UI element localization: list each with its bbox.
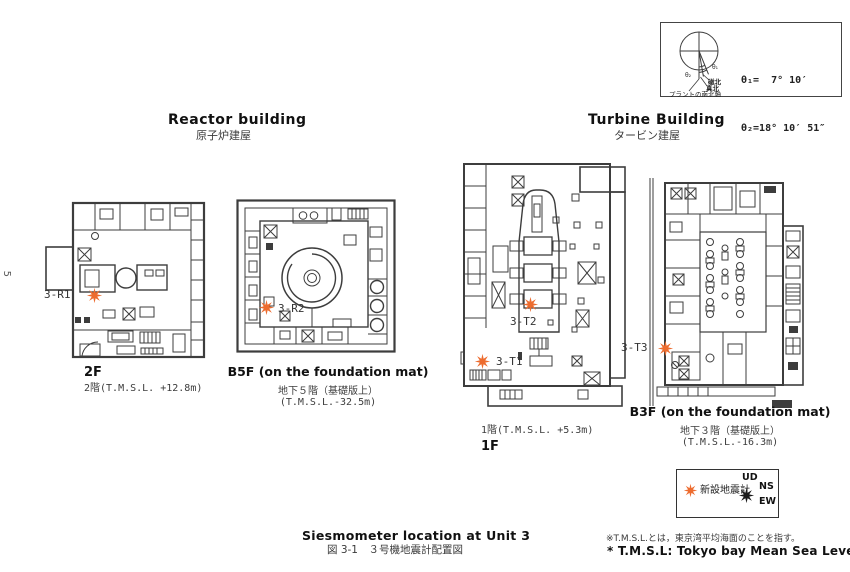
- reactor-2f-caption: 2F: [84, 366, 102, 381]
- reactor-building-title-jp: 原子炉建屋: [196, 130, 251, 143]
- reactor-building-title: Reactor building: [168, 112, 307, 128]
- turbine-building-title-jp: タービン建屋: [614, 130, 680, 143]
- containment-circle: [282, 248, 342, 308]
- legend-axis-ew: EW: [759, 497, 776, 508]
- turbine-b3f-caption-block: B3F (on the foundation mat) 地下３階（基礎版上） (…: [622, 404, 838, 448]
- legend-axis-star-icon: [738, 487, 755, 508]
- theta2-figure-label: θ₂: [685, 72, 692, 79]
- marker-label-3-t1: 3-T1: [496, 356, 523, 369]
- turbine-building-title: Turbine Building: [588, 112, 725, 128]
- north-reference-box: θ₁ θ₂ 磁北 真北 プラントの南北軸 θ₁= 7° 10′ θ₂=18° 1…: [660, 22, 842, 97]
- page-number: 5: [0, 271, 12, 277]
- seismometer-marker-3-r1: [86, 287, 103, 304]
- tmsl-note-en: * T.M.S.L: Tokyo bay Mean Sea Level: [607, 545, 850, 559]
- figure-caption-jp: 図 3-1 ３号機地震計配置図: [327, 544, 463, 556]
- seismometer-marker-3-t3: [657, 340, 674, 357]
- legend-axis-ud: UD: [742, 473, 758, 484]
- turbine-b3f-elevation: (T.M.S.L.-16.3m): [622, 437, 838, 448]
- legend-seismometer-star-icon: [683, 483, 700, 500]
- reactor-b5f-caption: B5F (on the foundation mat): [226, 364, 430, 379]
- document-page: 5 θ₁ θ₂ 磁北 真北 プラントの南北軸 θ₁= 7° 10′ θ₂=18°: [0, 0, 850, 572]
- reactor-2f-caption-jp: 2階(T.M.S.L. +12.8m): [84, 383, 202, 395]
- reactor-b5f-elevation: (T.M.S.L.-32.5m): [226, 397, 430, 408]
- marker-label-3-r2: 3-R2: [278, 303, 305, 316]
- seismometer-marker-3-r2: [258, 299, 275, 316]
- figure-caption-en: Siesmometer location at Unit 3: [302, 529, 530, 543]
- legend-box: 新設地震計 UD NS EW: [676, 469, 779, 518]
- reactor-2f-floorplan: [45, 200, 207, 360]
- turbine-b3f-caption: B3F (on the foundation mat): [622, 404, 838, 419]
- north-compass-figure: θ₁ θ₂ 磁北 真北 プラントの南北軸: [669, 27, 733, 97]
- turbine-b3f-caption-jp: 地下３階（基礎版上）: [622, 422, 838, 437]
- reactor-b5f-caption-jp: 地下５階（基礎版上）: [226, 382, 430, 397]
- theta2-value: θ₂=18° 10′ 51″: [741, 121, 825, 137]
- turbine-1f-floorplan: [460, 162, 628, 410]
- legend-axis-ns: NS: [759, 482, 774, 493]
- marker-label-3-t3: 3-T3: [621, 342, 648, 355]
- seismometer-marker-3-t2: [522, 296, 539, 313]
- turbine-1f-caption: 1F: [481, 440, 499, 455]
- marker-label-3-t2: 3-T2: [510, 316, 537, 329]
- theta1-figure-label: θ₁: [712, 64, 719, 71]
- turbine-1f-caption-jp: 1階(T.M.S.L. +5.3m): [481, 425, 593, 437]
- theta1-value: θ₁= 7° 10′: [741, 73, 825, 89]
- tmsl-note-jp: ※T.M.S.L.とは，東京湾平均海面のことを指す。: [606, 534, 800, 544]
- turbine-b3f-floorplan: [648, 176, 806, 410]
- marker-label-3-r1: 3-R1: [44, 289, 71, 302]
- reactor-b5f-caption-block: B5F (on the foundation mat) 地下５階（基礎版上） (…: [226, 364, 430, 408]
- reactor-b5f-floorplan: [236, 199, 396, 353]
- plant-axis-label: プラントの南北軸: [669, 90, 722, 98]
- seismometer-marker-3-t1: [474, 353, 491, 370]
